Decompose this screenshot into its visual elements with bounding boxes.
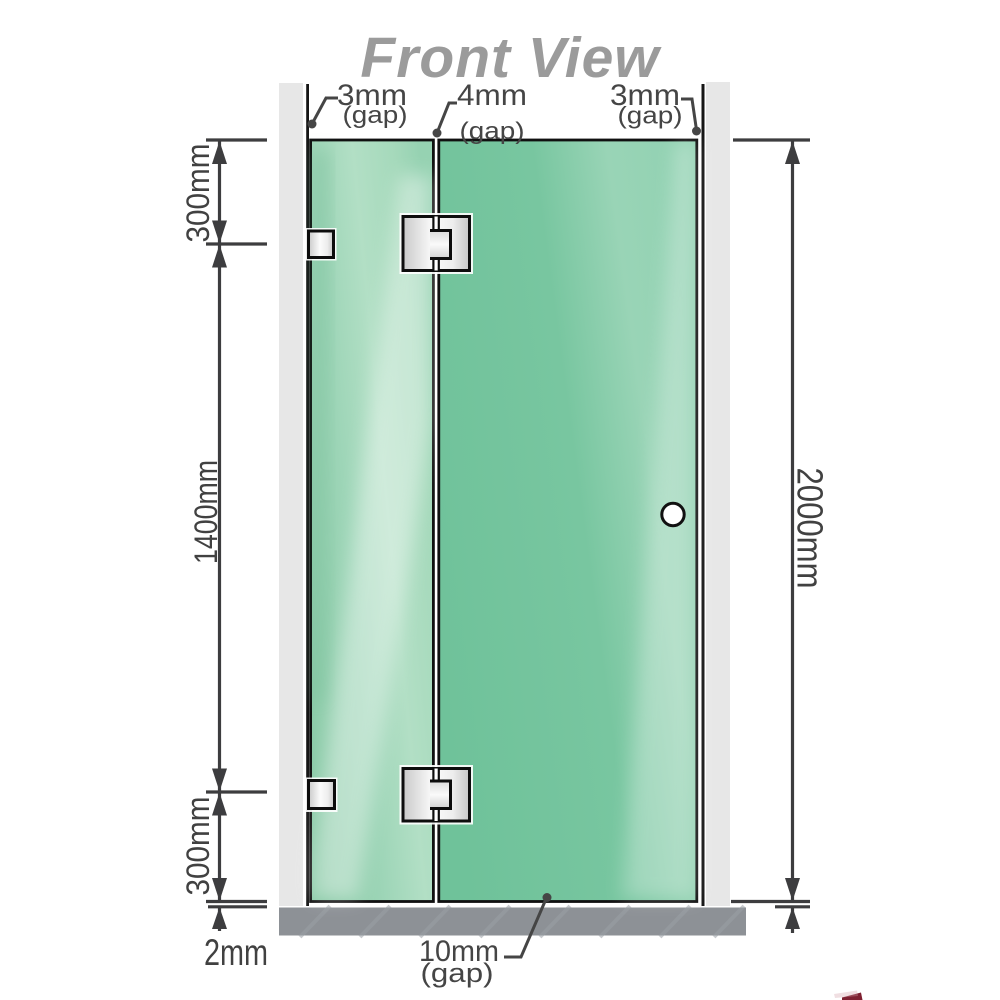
- svg-text:4mm: 4mm: [457, 79, 527, 112]
- svg-text:(gap): (gap): [421, 958, 494, 988]
- svg-text:2000mm: 2000mm: [790, 468, 831, 589]
- svg-text:(gap): (gap): [460, 118, 525, 145]
- svg-text:(gap): (gap): [618, 103, 683, 130]
- svg-text:2mm: 2mm: [204, 932, 268, 973]
- svg-text:(gap): (gap): [343, 102, 408, 129]
- svg-text:300mm: 300mm: [180, 144, 216, 243]
- svg-text:300mm: 300mm: [180, 797, 216, 896]
- svg-text:1400mm: 1400mm: [188, 460, 224, 564]
